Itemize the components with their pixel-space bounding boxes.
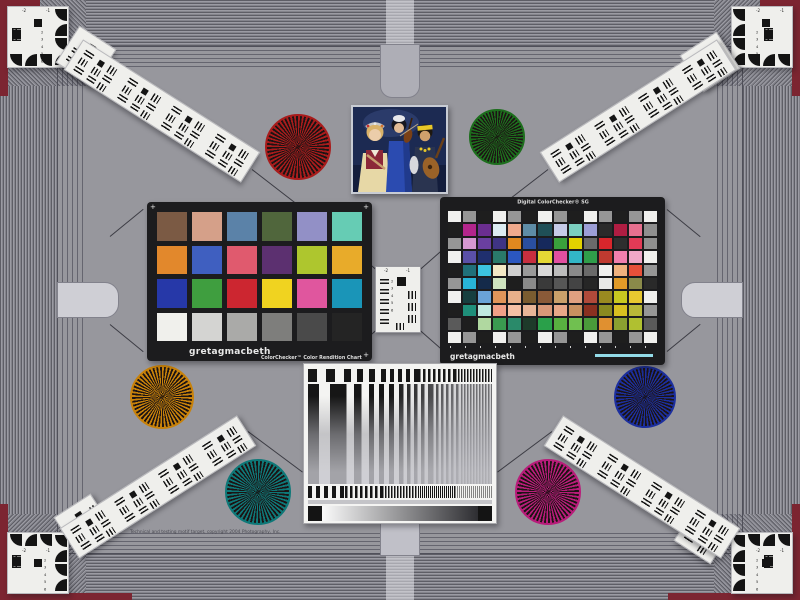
color-patch xyxy=(192,279,222,308)
color-patch xyxy=(629,238,642,249)
fan-sector xyxy=(55,550,67,562)
fan-sector xyxy=(40,54,52,66)
striped-band-left xyxy=(0,0,57,600)
resolution-card-tr: -2 -1 2 3 4 5 6 xyxy=(731,6,793,68)
color-patch xyxy=(644,318,657,329)
color-patch xyxy=(493,291,506,302)
color-patch xyxy=(538,291,551,302)
color-patch xyxy=(644,305,657,316)
color-patch xyxy=(644,251,657,262)
usaf-bar-groups xyxy=(12,555,38,593)
color-patch xyxy=(599,265,612,276)
color-patch xyxy=(508,332,521,343)
patch-row xyxy=(157,279,362,308)
color-patch xyxy=(584,251,597,262)
color-patch xyxy=(538,251,551,262)
fan-sector xyxy=(55,564,67,576)
color-patch xyxy=(508,238,521,249)
color-patch xyxy=(493,238,506,249)
siemens-star-magenta xyxy=(515,459,581,525)
color-patch xyxy=(584,238,597,249)
color-patch xyxy=(584,265,597,276)
siemens-star-blue xyxy=(614,366,676,428)
color-patch xyxy=(599,238,612,249)
color-patch xyxy=(569,332,582,343)
color-patch xyxy=(463,332,476,343)
color-patch xyxy=(508,318,521,329)
center-resolution-target: -2 -1 2 3 4 5 6 xyxy=(375,266,421,333)
color-patch xyxy=(523,332,536,343)
color-patch xyxy=(584,332,597,343)
sweep-bottom-bar-row xyxy=(308,486,492,498)
bar-group xyxy=(380,319,389,325)
patch-row xyxy=(448,291,657,302)
fan-sector xyxy=(55,579,67,591)
color-patch xyxy=(493,318,506,329)
fan-row xyxy=(10,54,52,66)
color-patch xyxy=(478,318,491,329)
patch-row xyxy=(448,224,657,235)
fan-sector xyxy=(733,535,745,547)
usaf-bar-groups xyxy=(764,555,790,593)
color-patch xyxy=(478,332,491,343)
fan-sector xyxy=(733,579,745,591)
fan-sector xyxy=(733,564,745,576)
color-patch xyxy=(478,251,491,262)
siemens-star-red xyxy=(265,114,331,180)
color-patch xyxy=(262,246,292,275)
color-patch xyxy=(614,318,627,329)
color-patch xyxy=(614,238,627,249)
usaf-square xyxy=(34,19,42,27)
fan-sector xyxy=(733,550,745,562)
color-patch xyxy=(157,212,187,241)
color-patch xyxy=(523,291,536,302)
color-patch xyxy=(629,305,642,316)
copyright-text: Technical and testing motif target, copy… xyxy=(130,529,281,534)
color-patch xyxy=(569,265,582,276)
color-patch xyxy=(227,279,257,308)
usaf-label: -1 xyxy=(46,549,50,553)
color-patch xyxy=(463,211,476,222)
colorchecker-24-card: + + + gretagmacbeth ColorChecker™ Color … xyxy=(147,202,372,361)
colorchecker-sg-title: Digital ColorChecker® SG xyxy=(517,199,589,205)
color-patch xyxy=(478,291,491,302)
color-patch xyxy=(614,278,627,289)
color-patch xyxy=(332,246,362,275)
sweep-top-bar-row xyxy=(308,369,492,382)
usaf-square xyxy=(397,277,406,286)
color-patch xyxy=(599,318,612,329)
color-patch xyxy=(614,332,627,343)
resolution-card-br: -2 -1 2 3 4 5 6 xyxy=(731,532,793,594)
color-patch xyxy=(508,278,521,289)
bar-group xyxy=(408,315,416,323)
color-patch xyxy=(599,305,612,316)
color-patch xyxy=(463,265,476,276)
frequency-sweep-chart xyxy=(303,363,497,524)
color-patch xyxy=(463,251,476,262)
fan-sector xyxy=(25,534,37,546)
color-patch xyxy=(554,291,567,302)
fan-sector xyxy=(778,534,790,546)
color-patch xyxy=(523,211,536,222)
color-patch xyxy=(192,246,222,275)
bar-group xyxy=(380,289,389,295)
color-patch xyxy=(523,251,536,262)
color-patch xyxy=(478,238,491,249)
fan-sector xyxy=(40,534,52,546)
color-patch xyxy=(508,211,521,222)
patch-row xyxy=(157,246,362,275)
musicians-photo-image xyxy=(351,105,448,194)
color-patch xyxy=(554,224,567,235)
usaf-scale-numbers: 2 3 4 5 6 xyxy=(391,278,393,314)
siemens-star-amber xyxy=(130,365,194,429)
color-patch xyxy=(554,332,567,343)
fan-column xyxy=(733,9,745,65)
color-patch xyxy=(463,224,476,235)
color-patch xyxy=(644,291,657,302)
color-patch xyxy=(629,224,642,235)
bar-group xyxy=(396,323,404,330)
color-patch xyxy=(554,251,567,262)
patch-row xyxy=(448,211,657,222)
color-patch xyxy=(332,212,362,241)
patch-row xyxy=(157,212,362,241)
color-patch xyxy=(332,279,362,308)
color-patch xyxy=(644,238,657,249)
color-patch xyxy=(599,278,612,289)
color-patch xyxy=(523,305,536,316)
color-patch xyxy=(629,251,642,262)
color-patch xyxy=(448,332,461,343)
color-patch xyxy=(478,305,491,316)
color-patch xyxy=(538,278,551,289)
color-patch xyxy=(629,265,642,276)
color-patch xyxy=(538,305,551,316)
color-patch xyxy=(644,278,657,289)
fan-sector xyxy=(25,54,37,66)
color-patch xyxy=(192,313,222,342)
color-patch xyxy=(523,224,536,235)
usaf-label: -1 xyxy=(46,9,50,13)
fan-sector xyxy=(778,54,790,66)
corner-mark-br xyxy=(668,593,800,600)
color-patch xyxy=(478,224,491,235)
color-patch xyxy=(584,305,597,316)
color-patch xyxy=(644,224,657,235)
color-patch xyxy=(448,265,461,276)
siemens-star-teal xyxy=(225,459,291,525)
color-patch xyxy=(463,291,476,302)
color-patch xyxy=(523,238,536,249)
color-patch xyxy=(599,251,612,262)
fan-sector xyxy=(763,534,775,546)
color-patch xyxy=(599,211,612,222)
registration-tab-right xyxy=(681,282,743,318)
colorchecker-24-title: ColorChecker™ Color Rendition Chart xyxy=(261,355,362,360)
color-patch xyxy=(599,332,612,343)
color-patch xyxy=(584,291,597,302)
color-patch xyxy=(629,291,642,302)
usaf-label: -2 xyxy=(756,9,760,13)
test-chart-photo: -2 -1 2 3 4 5 6 -2 -1 2 3 4 5 6 xyxy=(0,0,800,600)
color-patch xyxy=(538,265,551,276)
usaf-label: -2 xyxy=(22,9,26,13)
usaf-label: -2 xyxy=(22,549,26,553)
patch-row xyxy=(448,278,657,289)
color-patch xyxy=(508,251,521,262)
color-patch xyxy=(297,246,327,275)
corner-plus-mark: + xyxy=(363,204,369,211)
color-patch xyxy=(569,318,582,329)
color-patch xyxy=(599,224,612,235)
color-patch xyxy=(614,224,627,235)
color-patch xyxy=(157,279,187,308)
color-patch xyxy=(227,246,257,275)
color-patch xyxy=(508,305,521,316)
color-patch xyxy=(554,278,567,289)
corner-mark-bl xyxy=(0,593,132,600)
color-patch xyxy=(614,211,627,222)
patch-row xyxy=(448,318,657,329)
color-patch xyxy=(448,318,461,329)
color-patch xyxy=(448,238,461,249)
color-patch xyxy=(463,318,476,329)
color-patch xyxy=(523,265,536,276)
color-patch xyxy=(614,305,627,316)
color-patch xyxy=(448,211,461,222)
colorchecker-sg-card: Digital ColorChecker® SG gretagmacbeth xyxy=(440,197,665,365)
color-patch xyxy=(554,305,567,316)
corner-plus-mark: + xyxy=(150,204,156,211)
color-patch xyxy=(644,265,657,276)
patch-row xyxy=(157,313,362,342)
patch-row xyxy=(448,251,657,262)
fan-sector xyxy=(10,54,22,66)
usaf-label: -2 xyxy=(384,269,388,273)
color-patch xyxy=(569,211,582,222)
color-patch xyxy=(629,278,642,289)
color-patch xyxy=(262,313,292,342)
resolution-card-bl: -2 -1 2 3 4 5 6 xyxy=(7,532,69,594)
bar-group xyxy=(408,291,416,299)
color-patch xyxy=(554,318,567,329)
color-patch xyxy=(569,291,582,302)
color-patch xyxy=(262,212,292,241)
color-patch xyxy=(629,211,642,222)
color-patch xyxy=(463,305,476,316)
color-patch xyxy=(569,305,582,316)
patch-row xyxy=(448,238,657,249)
corner-plus-mark: + xyxy=(363,352,369,359)
bar-group xyxy=(380,279,389,285)
color-patch xyxy=(448,251,461,262)
registration-tab-left xyxy=(57,282,119,318)
registration-tab-top xyxy=(380,44,420,98)
fan-sector xyxy=(10,534,22,546)
gray-step-wedge xyxy=(308,506,492,521)
color-patch xyxy=(297,313,327,342)
color-patch xyxy=(554,265,567,276)
color-patch xyxy=(523,318,536,329)
usaf-label: -2 xyxy=(756,549,760,553)
color-patch xyxy=(554,238,567,249)
color-patch xyxy=(629,332,642,343)
color-patch xyxy=(538,332,551,343)
fan-row xyxy=(748,54,790,66)
color-patch xyxy=(448,278,461,289)
color-patch xyxy=(332,313,362,342)
color-patch xyxy=(262,279,292,308)
color-patch xyxy=(478,278,491,289)
color-patch xyxy=(614,291,627,302)
fan-sector xyxy=(733,38,745,50)
color-patch xyxy=(584,211,597,222)
color-patch xyxy=(493,224,506,235)
color-patch xyxy=(584,224,597,235)
color-patch xyxy=(493,251,506,262)
color-patch xyxy=(538,224,551,235)
colorchecker-sg-grid xyxy=(448,211,657,343)
fan-sector xyxy=(748,54,760,66)
color-patch xyxy=(448,305,461,316)
color-patch xyxy=(463,278,476,289)
usaf-label: -1 xyxy=(780,9,784,13)
band-light-column-top xyxy=(386,0,414,46)
color-patch xyxy=(614,251,627,262)
color-patch xyxy=(584,318,597,329)
bar-group xyxy=(408,303,416,311)
patch-row xyxy=(448,332,657,343)
usaf-label: -1 xyxy=(406,269,410,273)
color-patch xyxy=(569,238,582,249)
band-light-column-bottom xyxy=(386,554,414,600)
usaf-label: -1 xyxy=(780,549,784,553)
usaf-scale-numbers: 2 3 4 5 6 xyxy=(44,557,46,593)
fan-sector xyxy=(763,54,775,66)
color-patch xyxy=(493,278,506,289)
patch-row xyxy=(448,305,657,316)
color-patch xyxy=(538,318,551,329)
color-patch xyxy=(463,238,476,249)
colorchecker-24-brand: gretagmacbeth xyxy=(189,347,271,357)
color-patch xyxy=(538,211,551,222)
color-patch xyxy=(508,224,521,235)
color-patch xyxy=(554,211,567,222)
color-patch xyxy=(569,224,582,235)
color-patch xyxy=(508,265,521,276)
corner-mark-br xyxy=(792,504,800,600)
fan-row xyxy=(10,534,52,546)
color-patch xyxy=(569,278,582,289)
color-patch xyxy=(584,278,597,289)
color-patch xyxy=(227,313,257,342)
color-patch xyxy=(614,265,627,276)
sg-ruler xyxy=(595,354,653,357)
colorchecker-24-grid xyxy=(157,212,362,341)
sweep-divider xyxy=(308,500,492,504)
sweep-blur-fade xyxy=(308,384,492,484)
bar-group xyxy=(380,299,389,305)
bar-group xyxy=(380,309,389,315)
siemens-star-green xyxy=(469,109,525,165)
color-patch xyxy=(157,313,187,342)
color-patch xyxy=(508,291,521,302)
color-patch xyxy=(478,211,491,222)
fan-row xyxy=(748,534,790,546)
color-patch xyxy=(493,211,506,222)
fan-sector xyxy=(55,24,67,36)
sg-tick-marks xyxy=(450,346,655,348)
color-patch xyxy=(227,212,257,241)
color-patch xyxy=(493,265,506,276)
patch-row xyxy=(448,265,657,276)
color-patch xyxy=(569,251,582,262)
color-patch xyxy=(629,318,642,329)
fan-sector xyxy=(748,534,760,546)
color-patch xyxy=(644,332,657,343)
color-patch xyxy=(644,211,657,222)
fan-sector xyxy=(55,9,67,21)
usaf-square xyxy=(762,19,770,27)
color-patch xyxy=(297,212,327,241)
usaf-scale-numbers: 2 3 4 5 6 xyxy=(756,557,758,593)
color-patch xyxy=(523,278,536,289)
corner-mark-tr xyxy=(792,0,800,96)
color-patch xyxy=(297,279,327,308)
color-patch xyxy=(448,291,461,302)
colorchecker-sg-brand: gretagmacbeth xyxy=(450,352,515,361)
fan-sector xyxy=(733,24,745,36)
color-patch xyxy=(538,238,551,249)
color-patch xyxy=(493,305,506,316)
fan-column xyxy=(55,535,67,591)
color-patch xyxy=(478,265,491,276)
color-patch xyxy=(157,246,187,275)
color-patch xyxy=(192,212,222,241)
color-patch xyxy=(448,224,461,235)
color-patch xyxy=(493,332,506,343)
musicians-photo xyxy=(351,105,448,194)
fan-column xyxy=(733,535,745,591)
color-patch xyxy=(599,291,612,302)
fan-sector xyxy=(733,9,745,21)
